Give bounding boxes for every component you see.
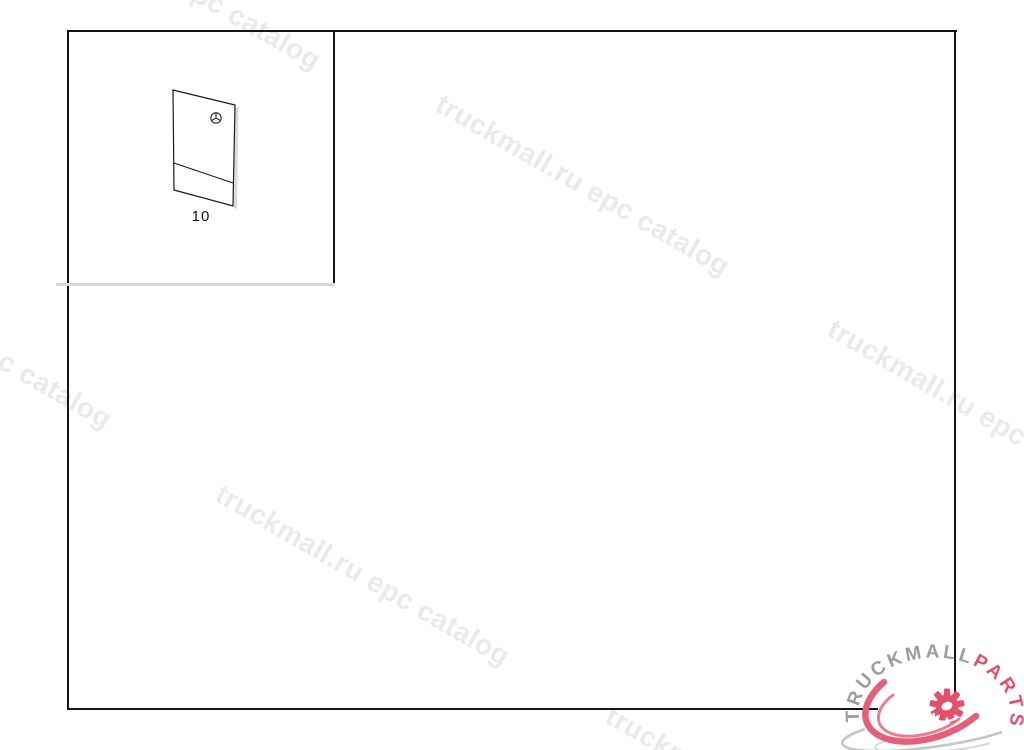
watermark-text: truckmall.ru epc catalog <box>822 313 1024 508</box>
watermark-text: truckmall.ru epc catalog <box>0 241 117 436</box>
plate-shadow <box>236 107 238 209</box>
inner-box-border-bottom <box>56 283 335 286</box>
catalog-page: truckmall.ru epc catalog truckmall.ru ep… <box>0 0 1024 750</box>
plate-outline <box>173 90 235 206</box>
frame-border-bottom <box>67 708 878 710</box>
frame-border-right <box>954 30 956 710</box>
watermark-text: truckmall.ru epc catalog <box>210 478 515 673</box>
truckmall-logo: TRUCKMALLPARTS <box>830 635 1024 750</box>
frame-border-left <box>67 30 69 710</box>
inner-box-border-right <box>333 30 335 285</box>
watermark-text: truckmall.ru epc catalog <box>430 88 735 283</box>
part-number-label[interactable]: 10 <box>184 208 218 225</box>
logo-text-accent: PARTS <box>970 650 1024 730</box>
frame-border-top <box>67 30 957 32</box>
